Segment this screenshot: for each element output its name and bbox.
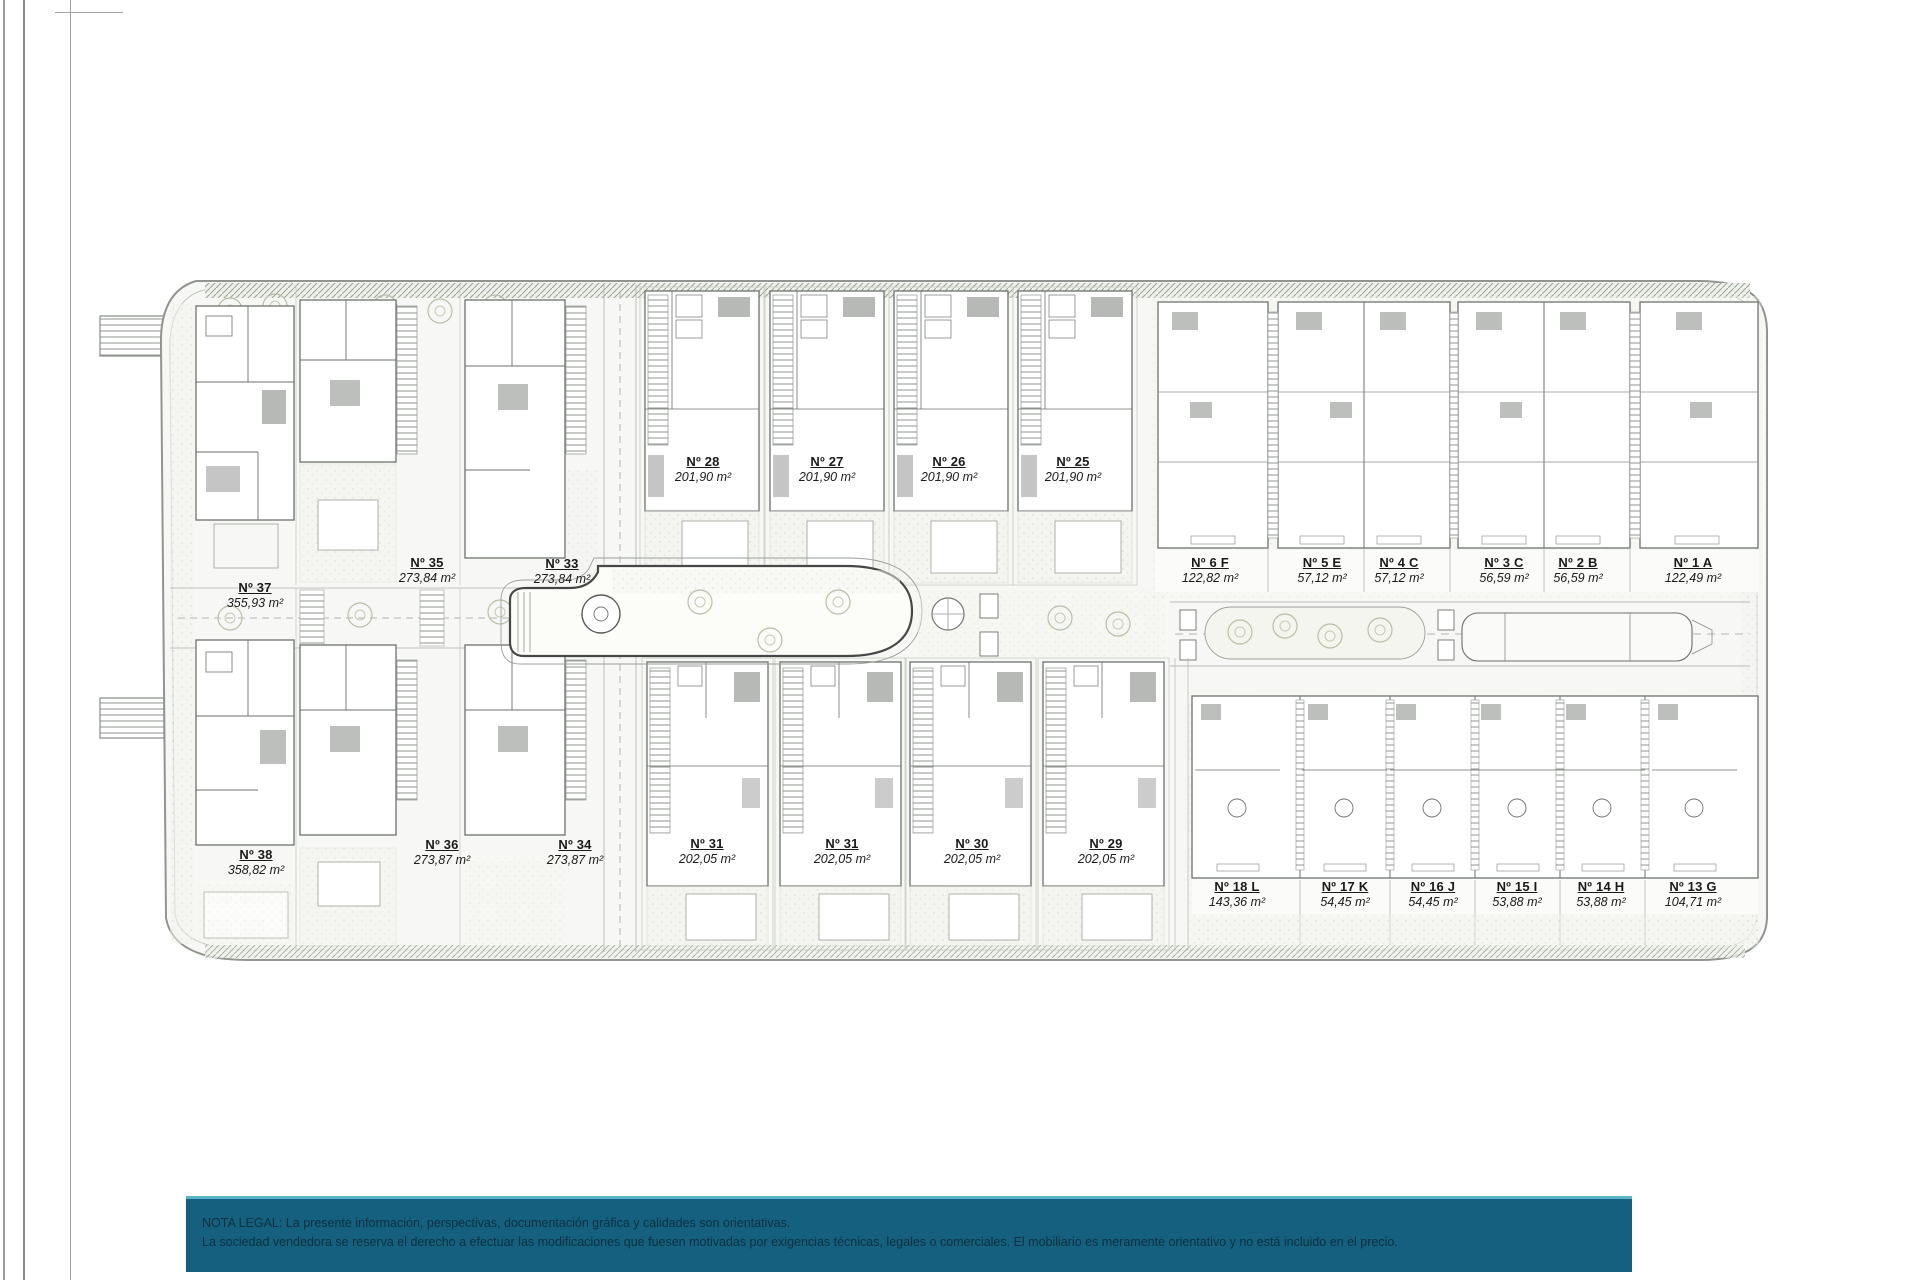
- townhouse-28: [640, 287, 764, 585]
- site-tab: [100, 698, 164, 738]
- apartments-top: [1152, 296, 1762, 598]
- legal-notice-bar: NOTA LEGAL: La presente información, per…: [186, 1196, 1632, 1272]
- siteplan-drawing: [0, 0, 1920, 1280]
- villa-38: [196, 640, 294, 944]
- townhouse-27: [765, 287, 889, 585]
- plaza-roundabout: [918, 590, 1166, 656]
- townhouse-31b: [775, 658, 906, 950]
- townhouse-29: [1038, 658, 1169, 950]
- legal-line-1: NOTA LEGAL: La presente información, per…: [202, 1214, 1622, 1233]
- site-tab: [100, 316, 164, 356]
- townhouse-26: [889, 287, 1013, 585]
- apartments-bottom: [1188, 690, 1760, 948]
- villa-33: [465, 300, 599, 580]
- townhouse-31a: [642, 658, 773, 950]
- legal-line-2: La sociedad vendedora se reserva el dere…: [202, 1233, 1622, 1252]
- townhouse-25: [1013, 287, 1137, 585]
- page: Nº 37355,93 m²Nº 35273,84 m²Nº 33273,84 …: [0, 0, 1920, 1280]
- townhouse-30: [905, 658, 1036, 950]
